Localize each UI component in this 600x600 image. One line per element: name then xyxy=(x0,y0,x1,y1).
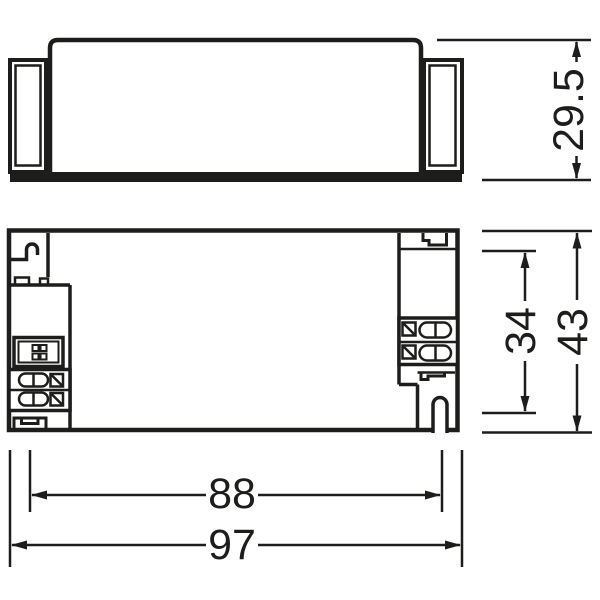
plan-view xyxy=(9,231,458,434)
arrowhead-down xyxy=(572,163,581,179)
arrowhead-left xyxy=(11,541,27,550)
dimension-label-width-overall: 43 xyxy=(549,308,597,356)
arrowhead-up xyxy=(573,233,582,249)
plan-view-outline xyxy=(9,231,458,431)
side-view-base-plate xyxy=(10,172,462,182)
dimension-width-mounting: 34 xyxy=(482,251,545,413)
arrowhead-up xyxy=(572,41,581,57)
arrowhead-right xyxy=(425,491,441,500)
side-view-body-outline xyxy=(50,40,421,176)
dimension-label-length-overall: 97 xyxy=(208,521,256,569)
arrowhead-down xyxy=(521,396,530,412)
dimension-label-length-mounting: 88 xyxy=(208,470,256,518)
technical-drawing-page: 29.5 43 34 88 97 xyxy=(0,0,600,600)
dimension-label-width-mounting: 34 xyxy=(497,307,545,355)
arrowhead-left xyxy=(31,491,47,500)
arrowhead-right xyxy=(445,541,461,550)
arrowhead-down xyxy=(573,416,582,432)
dimension-label-height: 29.5 xyxy=(545,68,593,152)
side-view xyxy=(10,40,462,182)
mounting-u-slot xyxy=(433,398,447,433)
technical-drawing-canvas: 29.5 43 34 88 97 xyxy=(0,0,600,600)
arrowhead-up xyxy=(521,252,530,268)
dimension-length-mounting: 88 xyxy=(30,450,442,518)
